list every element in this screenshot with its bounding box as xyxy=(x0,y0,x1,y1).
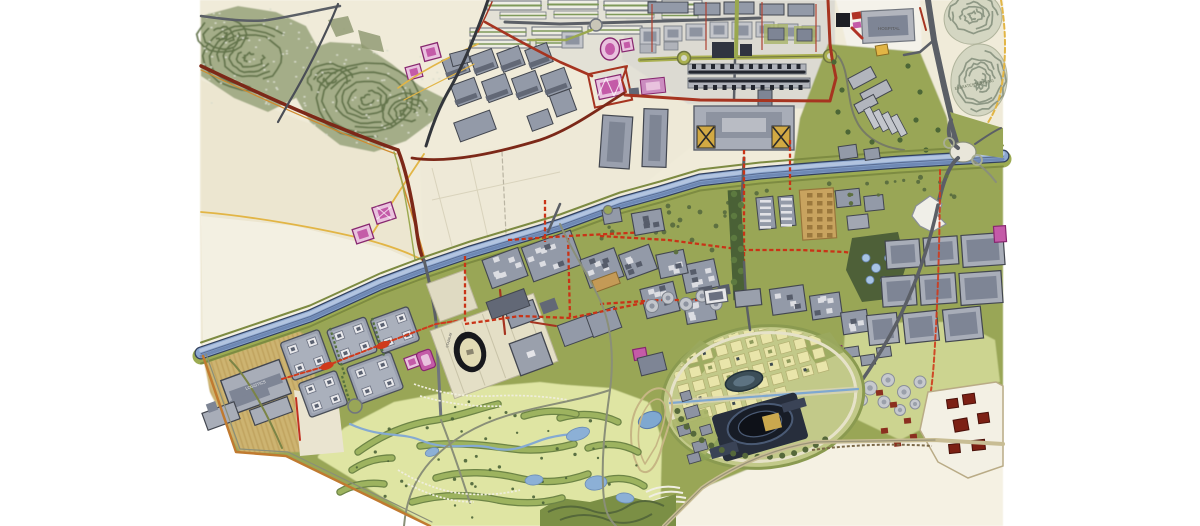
svg-text:HOSPITAL: HOSPITAL xyxy=(878,26,900,31)
